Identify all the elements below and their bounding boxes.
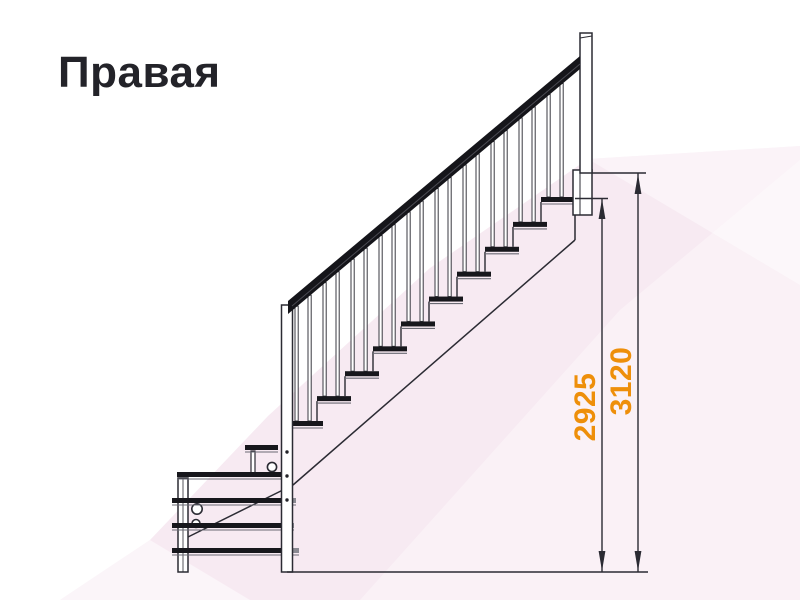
lower-tread bbox=[172, 548, 299, 553]
tread bbox=[513, 222, 547, 227]
dimension-label-2925: 2925 bbox=[569, 373, 602, 442]
corner-tread bbox=[245, 445, 278, 450]
dimension-label-3120: 3120 bbox=[605, 347, 638, 416]
baluster bbox=[392, 225, 395, 347]
corner-tread-support bbox=[251, 451, 255, 473]
tread bbox=[457, 272, 491, 277]
tread bbox=[373, 346, 407, 351]
baluster bbox=[476, 154, 479, 272]
baluster bbox=[351, 259, 354, 371]
landing-fascia bbox=[573, 170, 592, 215]
baluster bbox=[323, 283, 326, 397]
screenshot-root: 2925 3120 Правая bbox=[0, 0, 800, 600]
baluster bbox=[547, 94, 550, 197]
baluster bbox=[532, 107, 535, 222]
screw-dot-icon bbox=[285, 498, 288, 501]
baluster bbox=[491, 141, 494, 246]
tread bbox=[345, 371, 379, 376]
center-post bbox=[282, 305, 293, 572]
baluster bbox=[407, 212, 410, 321]
background-polygons bbox=[60, 146, 800, 600]
lower-tread bbox=[177, 472, 282, 477]
tread bbox=[317, 396, 351, 401]
baluster bbox=[364, 248, 367, 371]
baluster bbox=[379, 236, 382, 347]
baluster bbox=[295, 306, 298, 421]
top-post bbox=[580, 33, 592, 173]
tread bbox=[289, 421, 323, 426]
baluster bbox=[560, 83, 563, 197]
lower-tread bbox=[172, 498, 296, 503]
baluster bbox=[420, 201, 423, 321]
baluster bbox=[336, 272, 339, 396]
tread bbox=[401, 321, 435, 326]
page-title: Правая bbox=[58, 48, 221, 98]
bolt-icon bbox=[267, 462, 276, 471]
baluster bbox=[435, 188, 438, 296]
fascia-board bbox=[573, 170, 592, 215]
top-post-body bbox=[580, 33, 592, 173]
lower-tread bbox=[172, 523, 294, 528]
screw-dot-icon bbox=[285, 474, 288, 477]
tread bbox=[541, 197, 575, 202]
tread bbox=[485, 247, 519, 252]
baluster bbox=[448, 178, 451, 297]
tread bbox=[429, 297, 463, 302]
baluster bbox=[308, 295, 311, 421]
baluster bbox=[504, 131, 507, 247]
baluster bbox=[519, 118, 522, 222]
baluster bbox=[463, 165, 466, 272]
screw-dot-icon bbox=[285, 450, 288, 453]
